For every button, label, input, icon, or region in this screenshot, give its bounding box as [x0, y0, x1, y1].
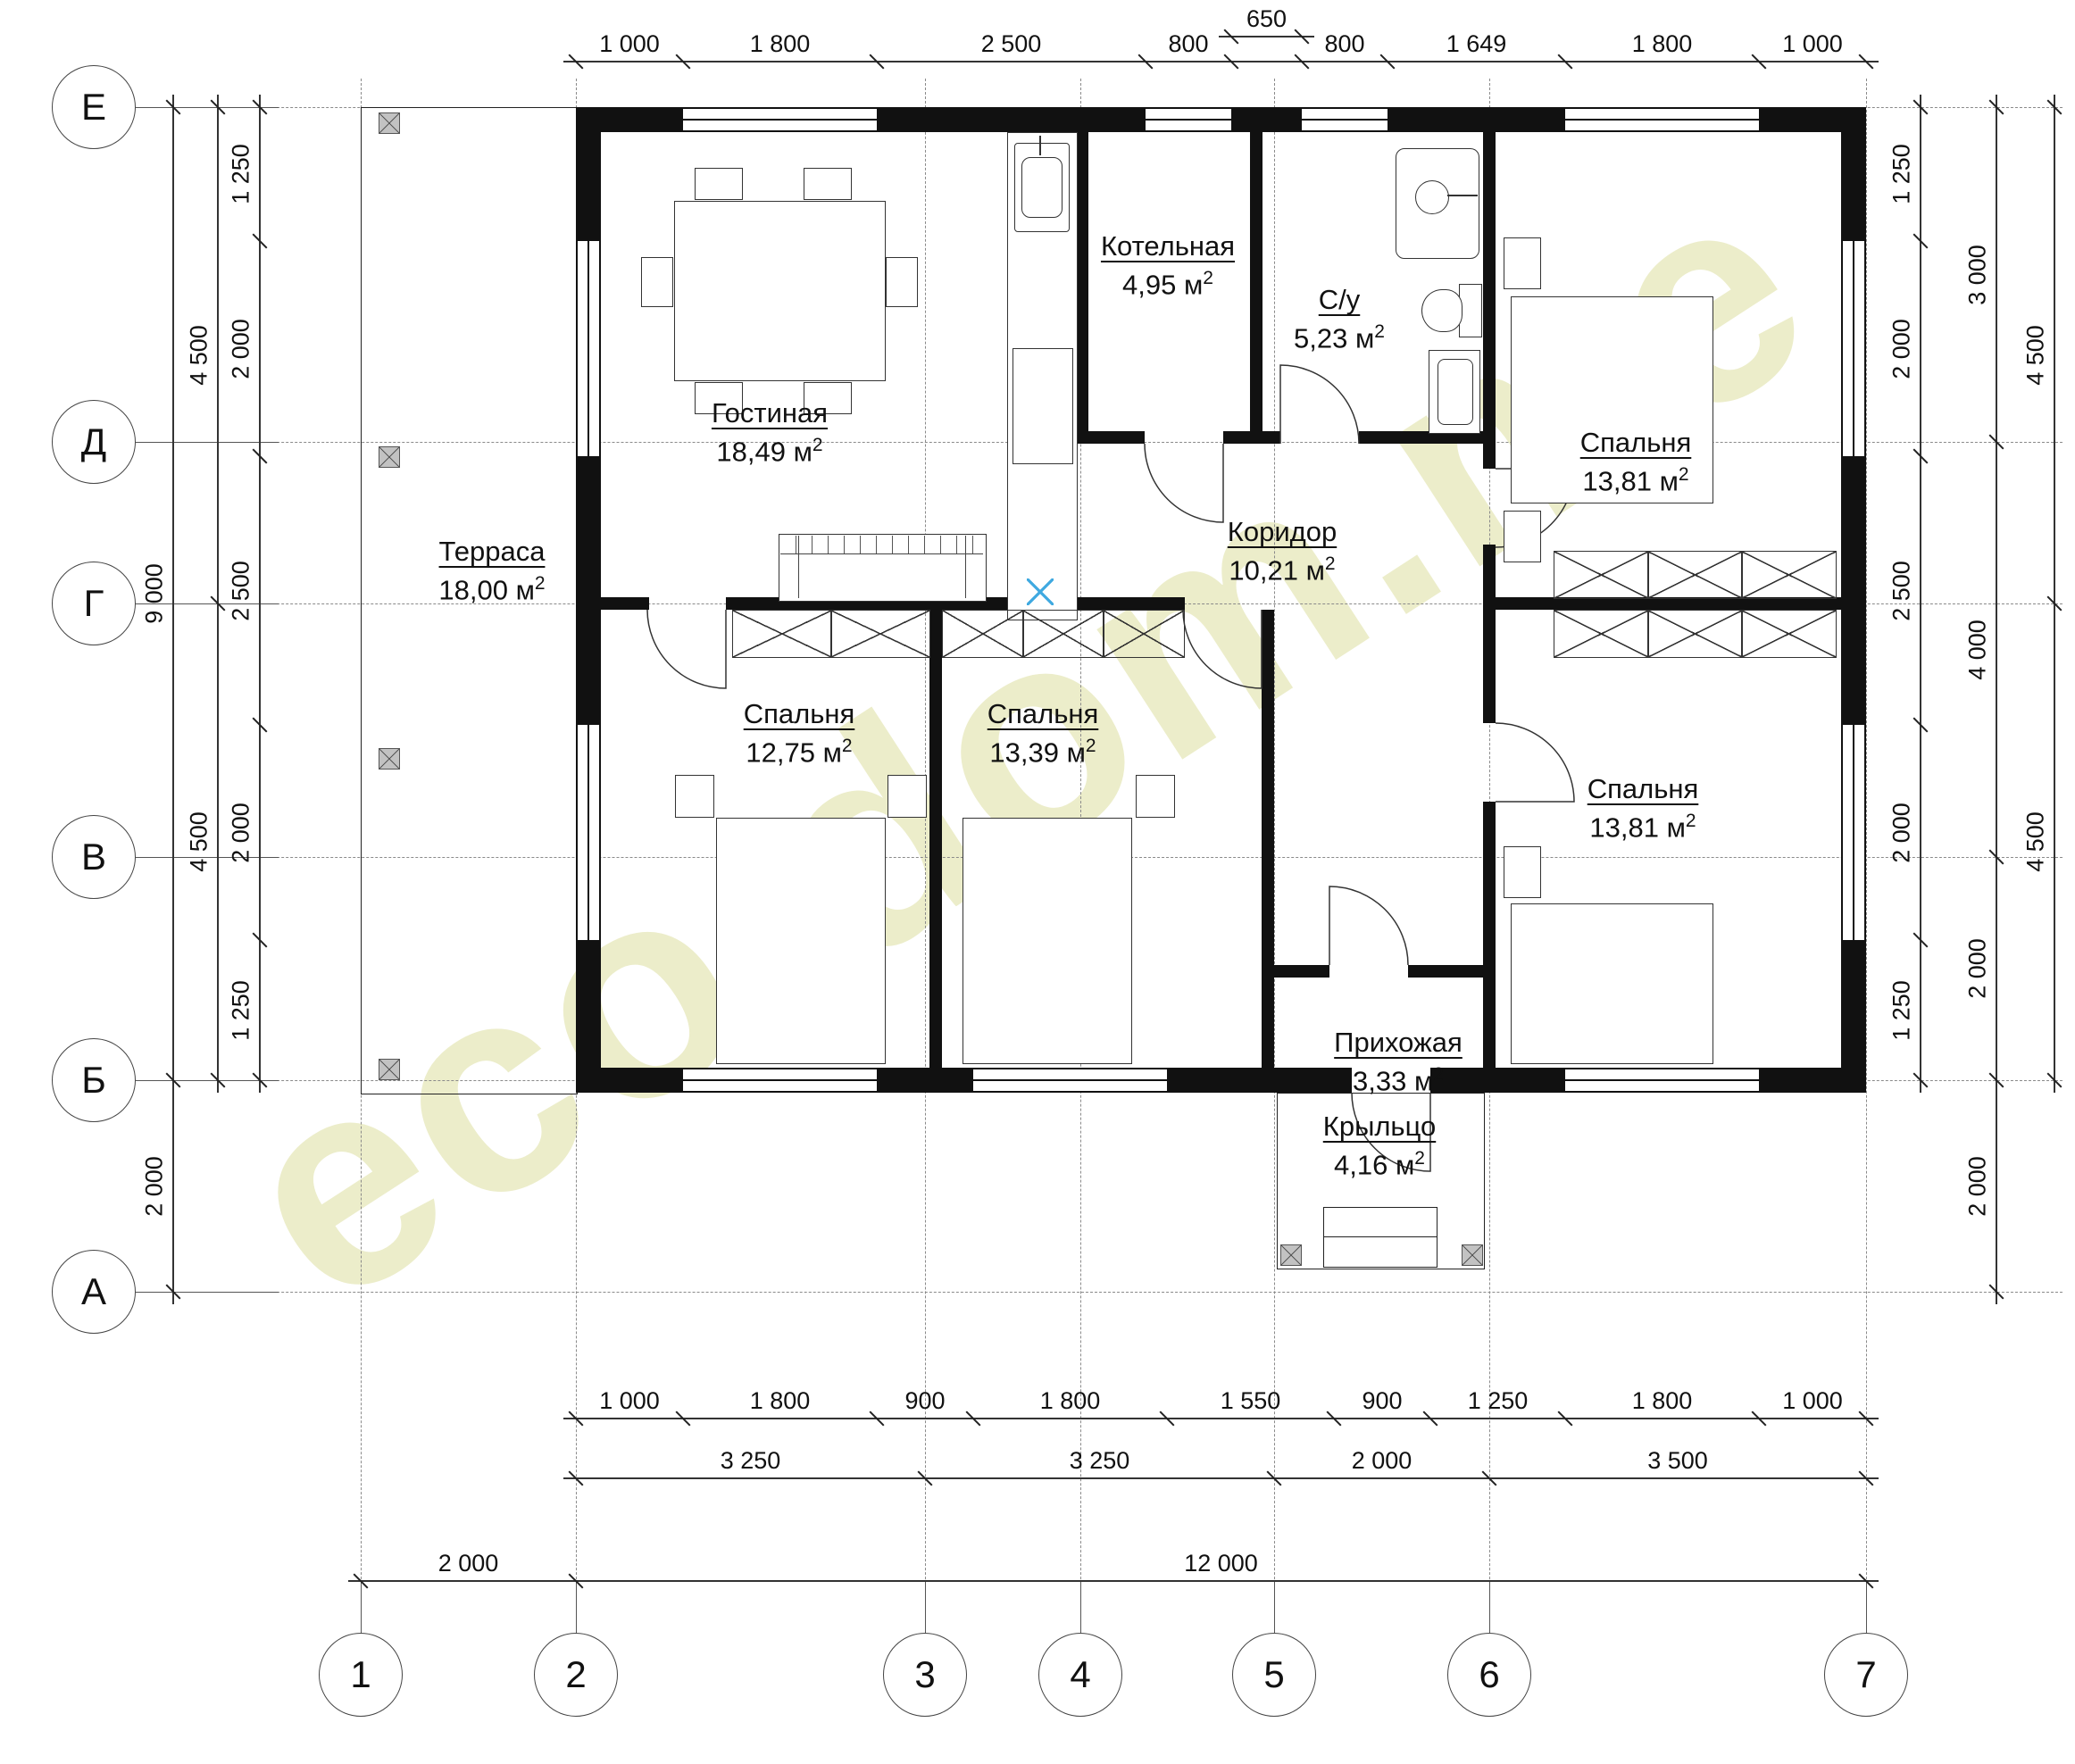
dim-label: 2 000 [1888, 319, 1916, 379]
dim-label: 1 250 [1468, 1387, 1529, 1415]
room-label-boiler: Котельная 4,95 м2 [1101, 230, 1235, 301]
dim-label: 1 000 [599, 30, 660, 58]
dim-label: 3 250 [1070, 1447, 1130, 1475]
wardrobe [942, 610, 1024, 658]
dim-label: 4 500 [2022, 325, 2050, 386]
room-label-bedroom-top-right: Спальня 13,81 м2 [1580, 427, 1692, 497]
axis-bubble-col-5: 5 [1232, 1633, 1316, 1717]
axis-bubble-col-7: 7 [1824, 1633, 1908, 1717]
dim-label: 4 500 [186, 811, 213, 872]
nightstand [1504, 846, 1541, 898]
dim-label: 1 800 [750, 30, 811, 58]
dim-label: 1 000 [1782, 1387, 1843, 1415]
door-bedroom-bottom-middle [1183, 610, 1262, 688]
dim-label: 4 500 [186, 325, 213, 386]
dim-chain-bottom-windows [563, 1418, 1879, 1419]
dim-label: 2 000 [438, 1550, 499, 1577]
dim-label: 1 800 [1632, 30, 1693, 58]
dim-label: 1 250 [1888, 980, 1916, 1041]
marker-x-icon [1027, 578, 1054, 605]
dim-label: 2 000 [228, 803, 255, 863]
wardrobe [1647, 610, 1743, 658]
floor-plan-sheet: eco-dom.me [0, 0, 2075, 1764]
wardrobe [1647, 551, 1743, 599]
kitchen-sink-basin [1021, 157, 1062, 218]
shower-drain [1415, 180, 1449, 214]
stove [1012, 348, 1073, 464]
dim-label: 1 550 [1221, 1387, 1281, 1415]
room-label-bedroom-bottom-left: Спальня 12,75 м2 [744, 698, 855, 769]
axis-bubble-row-В: В [52, 815, 136, 899]
dim-label: 1 649 [1446, 30, 1507, 58]
nightstand [887, 775, 927, 818]
dim-label: 800 [1168, 30, 1208, 58]
dim-chain-left-windows [259, 95, 261, 1093]
room-label-bathroom: С/у 5,23 м2 [1294, 284, 1385, 354]
wardrobe [1554, 610, 1649, 658]
door-hallway [1329, 886, 1408, 965]
dim-label: 1 000 [599, 1387, 660, 1415]
dim-label: 2 000 [228, 319, 255, 379]
dim-label: 1 800 [1632, 1387, 1693, 1415]
wardrobe [1741, 610, 1837, 658]
axis-bubble-col-6: 6 [1447, 1633, 1531, 1717]
dim-label: 4 500 [2022, 811, 2050, 872]
dim-label: 1 800 [1040, 1387, 1101, 1415]
nightstand [1136, 775, 1175, 818]
dim-chain-left-overall [172, 95, 174, 1304]
dim-label: 2 000 [1964, 938, 1992, 999]
dim-label: 2 000 [1888, 803, 1916, 863]
wardrobe [1741, 551, 1837, 599]
dim-label: 3 000 [1964, 245, 1992, 305]
dim-label: 2 500 [981, 30, 1042, 58]
wardrobe [1554, 551, 1649, 599]
dim-label: 12 000 [1184, 1550, 1258, 1577]
dim-label: 1 250 [228, 980, 255, 1041]
dim-label: 3 250 [721, 1447, 781, 1475]
axis-bubble-col-2: 2 [534, 1633, 618, 1717]
room-label-corridor: Коридор 10,21 м2 [1228, 516, 1337, 587]
dim-label: 9 000 [141, 563, 169, 624]
door-bedroom-bottom-right [1496, 723, 1574, 802]
bed [1511, 903, 1713, 1064]
room-label-living: Гостиная 18,49 м2 [712, 397, 828, 468]
sofa-armrest [965, 536, 984, 598]
dim-chain-right-axes [1996, 95, 1997, 1304]
wardrobe [1022, 610, 1104, 658]
axis-bubble-col-4: 4 [1038, 1633, 1122, 1717]
nightstand [675, 775, 714, 818]
dim-label: 2 000 [1964, 1156, 1992, 1217]
wardrobe [830, 610, 930, 658]
dim-label: 1 800 [750, 1387, 811, 1415]
dim-label: 1 000 [1782, 30, 1843, 58]
dim-label: 2 500 [1888, 561, 1916, 621]
chair [641, 257, 673, 307]
dim-label: 4 000 [1964, 620, 1992, 680]
dim-chain-bottom-axes [563, 1477, 1879, 1479]
dim-label: 650 [1246, 5, 1287, 33]
door-bedroom-bottom-left [647, 610, 726, 688]
door-boiler [1145, 444, 1223, 522]
axis-bubble-row-Е: Е [52, 65, 136, 149]
bed [962, 818, 1132, 1064]
dim-label: 800 [1324, 30, 1364, 58]
dim-label: 900 [904, 1387, 945, 1415]
chair [695, 168, 743, 200]
axis-bubble-col-3: 3 [883, 1633, 967, 1717]
dim-label: 1 250 [1888, 144, 1916, 204]
washbasin-bowl [1437, 359, 1473, 425]
sofa-back [780, 536, 983, 554]
axis-bubble-col-1: 1 [319, 1633, 403, 1717]
axis-bubble-row-Б: Б [52, 1038, 136, 1122]
nightstand [1504, 511, 1541, 562]
dim-chain-right-overall [2054, 95, 2055, 1093]
kitchen-faucet [1039, 136, 1041, 155]
room-label-porch: Крыльцо 4,16 м2 [1323, 1111, 1436, 1181]
dining-table [674, 201, 886, 381]
dim-chain-left-axes [217, 95, 219, 1093]
room-label-hallway: Прихожая 3,33 м2 [1334, 1027, 1462, 1097]
dim-label: 2 500 [228, 561, 255, 621]
room-label-bedroom-bottom-right: Спальня 13,81 м2 [1587, 773, 1699, 844]
dim-chain-right-windows [1920, 95, 1921, 1093]
dim-label: 3 500 [1647, 1447, 1708, 1475]
dim-label: 1 250 [228, 144, 255, 204]
dim-label: 900 [1362, 1387, 1402, 1415]
axis-bubble-row-А: А [52, 1250, 136, 1334]
chair [886, 257, 918, 307]
axis-bubble-row-Д: Д [52, 400, 136, 484]
toilet-bowl [1421, 289, 1462, 332]
dim-chain-top [563, 61, 1879, 62]
chair [804, 168, 852, 200]
dim-label: 2 000 [1352, 1447, 1412, 1475]
wardrobe [1103, 610, 1185, 658]
shower-mixer [1447, 195, 1478, 196]
wardrobe [732, 610, 832, 658]
dim-label: 2 000 [141, 1156, 169, 1217]
nightstand [1504, 237, 1541, 289]
sofa-armrest [780, 536, 799, 598]
door-bathroom [1280, 365, 1359, 444]
bed [716, 818, 886, 1064]
axis-bubble-row-Г: Г [52, 562, 136, 645]
room-label-terrace: Терраса 18,00 м2 [438, 536, 545, 606]
room-label-bedroom-bottom-middle: Спальня 13,39 м2 [987, 698, 1099, 769]
